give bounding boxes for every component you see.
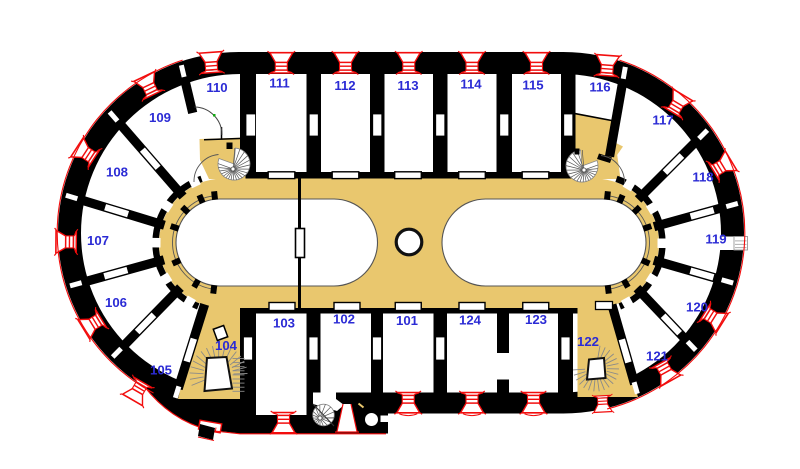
- svg-text:106: 106: [105, 295, 127, 310]
- svg-text:108: 108: [106, 165, 128, 180]
- svg-text:110: 110: [206, 80, 227, 95]
- svg-text:101: 101: [396, 313, 418, 328]
- svg-text:102: 102: [333, 312, 355, 327]
- svg-text:119: 119: [705, 232, 726, 247]
- svg-text:113: 113: [397, 78, 418, 93]
- svg-text:124: 124: [459, 313, 482, 328]
- svg-text:118: 118: [692, 170, 713, 185]
- svg-text:114: 114: [460, 77, 482, 92]
- svg-text:112: 112: [334, 78, 355, 93]
- svg-text:123: 123: [525, 312, 547, 327]
- svg-text:117: 117: [652, 113, 673, 128]
- svg-text:109: 109: [149, 110, 171, 125]
- svg-text:121: 121: [646, 349, 668, 364]
- svg-text:115: 115: [522, 78, 543, 93]
- svg-text:111: 111: [269, 76, 290, 91]
- svg-text:104: 104: [215, 338, 238, 353]
- svg-text:116: 116: [589, 80, 610, 95]
- svg-text:120: 120: [686, 300, 708, 315]
- svg-text:122: 122: [577, 334, 599, 349]
- svg-text:107: 107: [87, 233, 109, 248]
- svg-text:103: 103: [273, 316, 295, 331]
- svg-text:105: 105: [150, 363, 172, 378]
